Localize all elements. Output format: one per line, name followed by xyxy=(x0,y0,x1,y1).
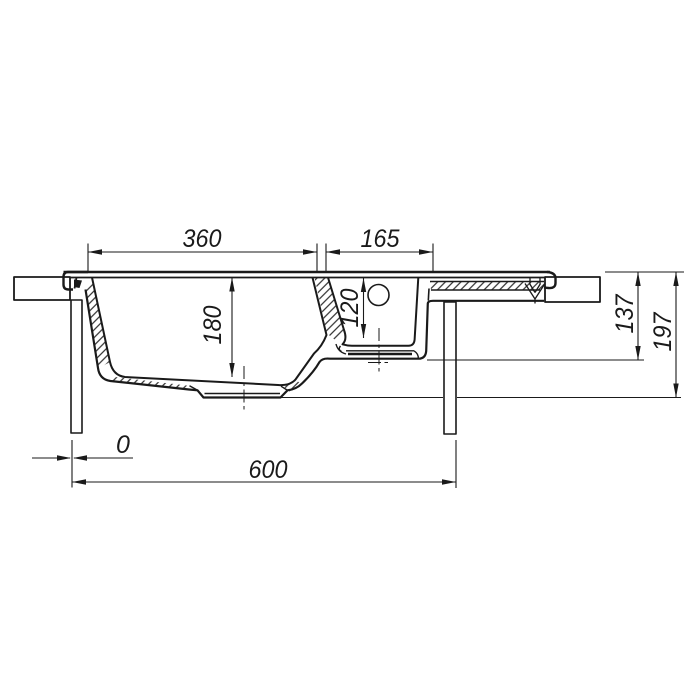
dim-0-value: 0 xyxy=(116,431,130,459)
dim-360-value: 360 xyxy=(183,225,222,253)
sink-section-drawing: 360 165 180 120 137 xyxy=(0,0,700,700)
dim-180-value: 180 xyxy=(199,305,227,344)
dim-197-value: 197 xyxy=(649,311,677,351)
dim-600-value: 600 xyxy=(249,456,288,484)
dim-120-value: 120 xyxy=(336,288,364,327)
dim-137-value: 137 xyxy=(611,293,639,333)
dim-165-value: 165 xyxy=(361,225,400,253)
ledge-bowl-junction xyxy=(428,289,429,301)
